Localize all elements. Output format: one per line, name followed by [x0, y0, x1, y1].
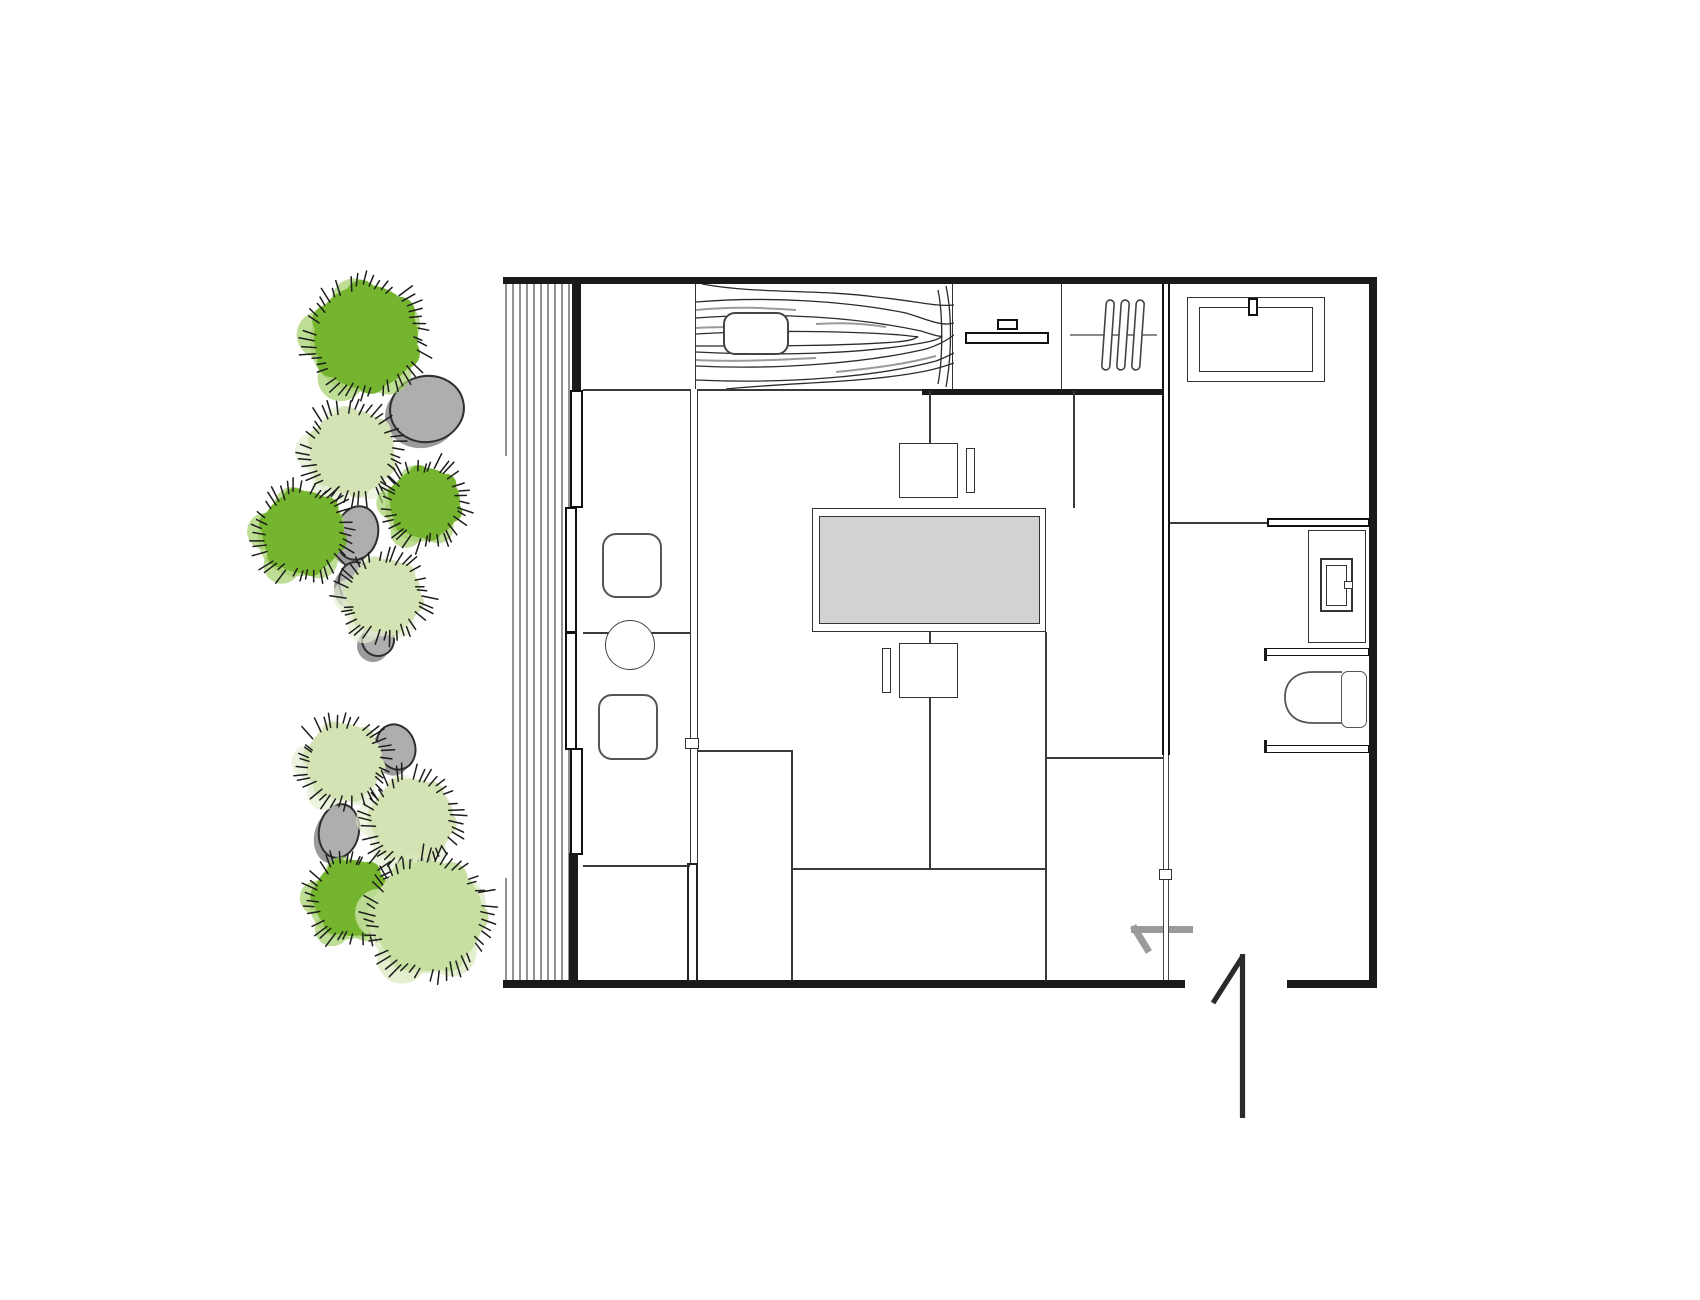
- kitchen-door-jamb: [685, 738, 699, 749]
- round-side-table: [605, 620, 655, 670]
- deck-plank-lines: [506, 284, 569, 981]
- toilet-tank: [1341, 671, 1367, 728]
- bathtub-faucet-icon: [1248, 298, 1258, 316]
- garden-rock: [310, 801, 364, 867]
- mat-line: [697, 750, 791, 752]
- wall-bottom-right: [1287, 980, 1377, 988]
- toilet-alcove-wall-top: [1266, 648, 1369, 656]
- chair-armrest: [882, 648, 891, 693]
- floor-chair: [899, 443, 958, 498]
- chair-stem-line: [929, 391, 931, 443]
- sliding-door-panel: [570, 748, 583, 855]
- mat-line: [791, 750, 793, 981]
- mat-line: [1045, 632, 1047, 981]
- corridor-wall: [1163, 755, 1169, 980]
- floor-cushion: [598, 694, 658, 760]
- plan-drawing-layer: [0, 0, 1700, 1300]
- desk-seat-cushion: [723, 312, 789, 355]
- toilet-alcove-jamb: [1264, 648, 1267, 661]
- sliding-door-panel: [565, 632, 577, 750]
- wood-counter-desk: [695, 284, 953, 389]
- bathroom-wall: [1162, 284, 1170, 755]
- sliding-wall-segment-bottom: [569, 853, 578, 982]
- mat-line: [1073, 391, 1075, 508]
- corridor-door-jamb: [1159, 869, 1172, 880]
- counter-front-line: [583, 389, 922, 391]
- kitchen-door-panel: [687, 863, 698, 982]
- entry-direction-arrow-icon: [1131, 926, 1193, 952]
- wall-right: [1369, 277, 1377, 988]
- sliding-door-panel: [570, 390, 583, 508]
- counter-front-wall: [922, 389, 1162, 395]
- sliding-wall-segment-top: [572, 284, 581, 392]
- sliding-door-panel: [565, 507, 577, 633]
- kitchen-divider-line: [583, 865, 690, 867]
- bathroom-divider-line: [1170, 522, 1267, 524]
- chair-armrest: [966, 448, 975, 493]
- chair-stem-line: [929, 698, 931, 868]
- sink-faucet-icon: [1344, 581, 1353, 589]
- floor-chair: [899, 643, 958, 698]
- toilet-alcove-jamb: [1264, 740, 1267, 753]
- wall-bottom-left: [503, 980, 1185, 988]
- mat-line: [791, 868, 1045, 870]
- floor-plan-canvas: [0, 0, 1700, 1300]
- toilet-bowl-icon: [1285, 672, 1342, 723]
- mat-line: [1046, 757, 1163, 759]
- radiator-icon: [1070, 300, 1157, 370]
- cooktop-cell: [953, 284, 1062, 389]
- wall-top: [503, 277, 1377, 284]
- cooktop-icon: [965, 332, 1049, 344]
- bathroom-partition-wall: [1267, 518, 1370, 527]
- bathtub-inner: [1199, 307, 1313, 372]
- low-table: [819, 516, 1040, 624]
- garden-bushes-and-rocks: [247, 271, 497, 984]
- toilet-alcove-wall-bottom: [1266, 745, 1369, 753]
- entry-door-swing-icon: [1213, 954, 1243, 1118]
- cooktop-knob-icon: [997, 319, 1018, 330]
- floor-cushion: [602, 533, 662, 598]
